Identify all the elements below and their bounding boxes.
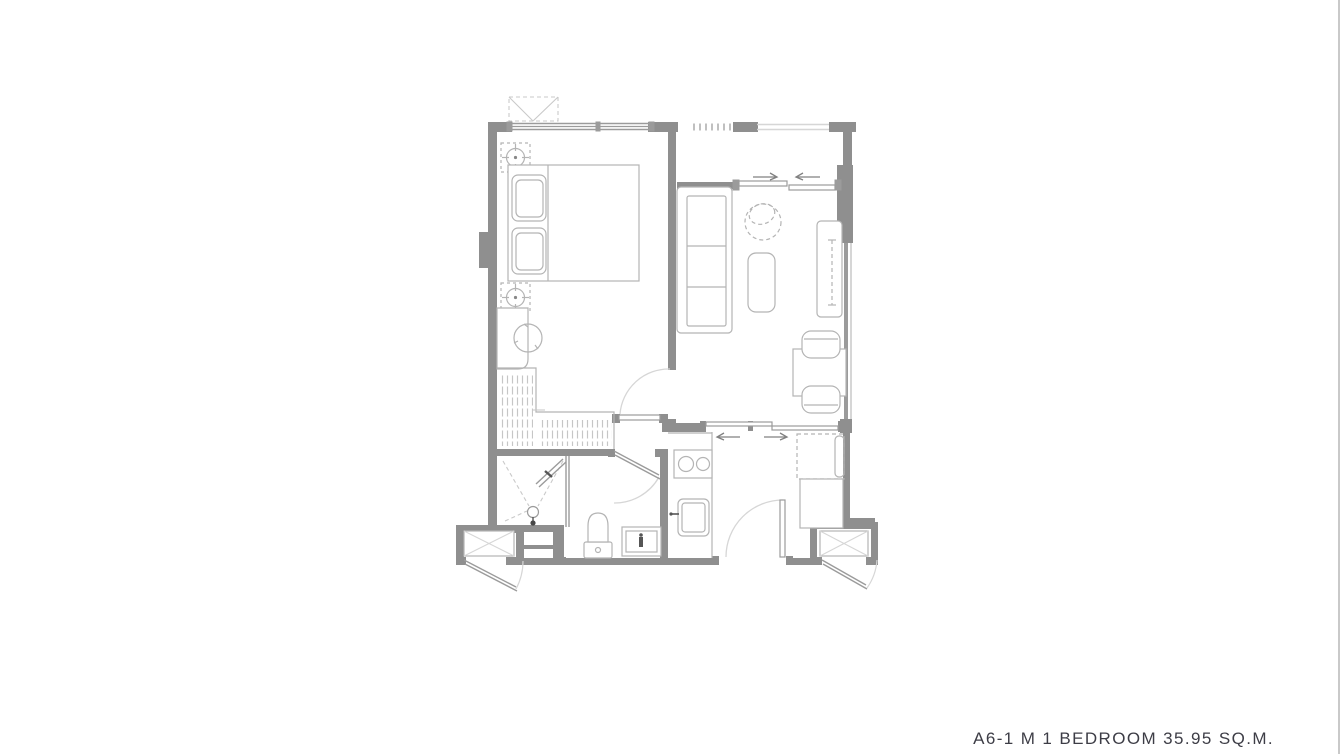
lounge-chair [745,200,781,240]
floor-drain-icon [528,507,539,526]
entry-cabinet [800,479,843,528]
service-shaft [524,532,553,558]
entrance-door [726,500,785,557]
dining-chair [802,386,840,413]
bathroom-door [614,451,660,503]
pillow [512,228,546,274]
balcony-sliding-door [733,180,841,190]
pillow [512,175,546,221]
balcony-door-arrows [753,173,820,180]
cooktop [674,450,712,478]
dressing-desk [497,308,528,369]
page-edge-line [1338,0,1340,754]
washbasin [622,527,661,556]
wardrobe [497,368,614,449]
hall-door-arrows [717,433,787,440]
coffee-table [748,253,775,312]
dining-chair [802,331,840,358]
bedroom-door [619,369,670,420]
hall-sliding-door [706,422,838,430]
unit-label: A6-1 M 1 BEDROOM 35.95 SQ.M. [973,729,1274,749]
balcony-railing [757,125,829,130]
floor-plan [0,0,1342,754]
kitchen-sink [669,499,709,536]
toilet [584,513,612,558]
condenser-unit-top [509,97,558,121]
refrigerator [797,434,844,479]
double-bed [508,165,639,281]
tv-console [817,221,842,317]
sofa [677,187,732,333]
bedroom-window [507,122,654,131]
louver-vent-icon [694,124,730,131]
shower [503,456,569,527]
